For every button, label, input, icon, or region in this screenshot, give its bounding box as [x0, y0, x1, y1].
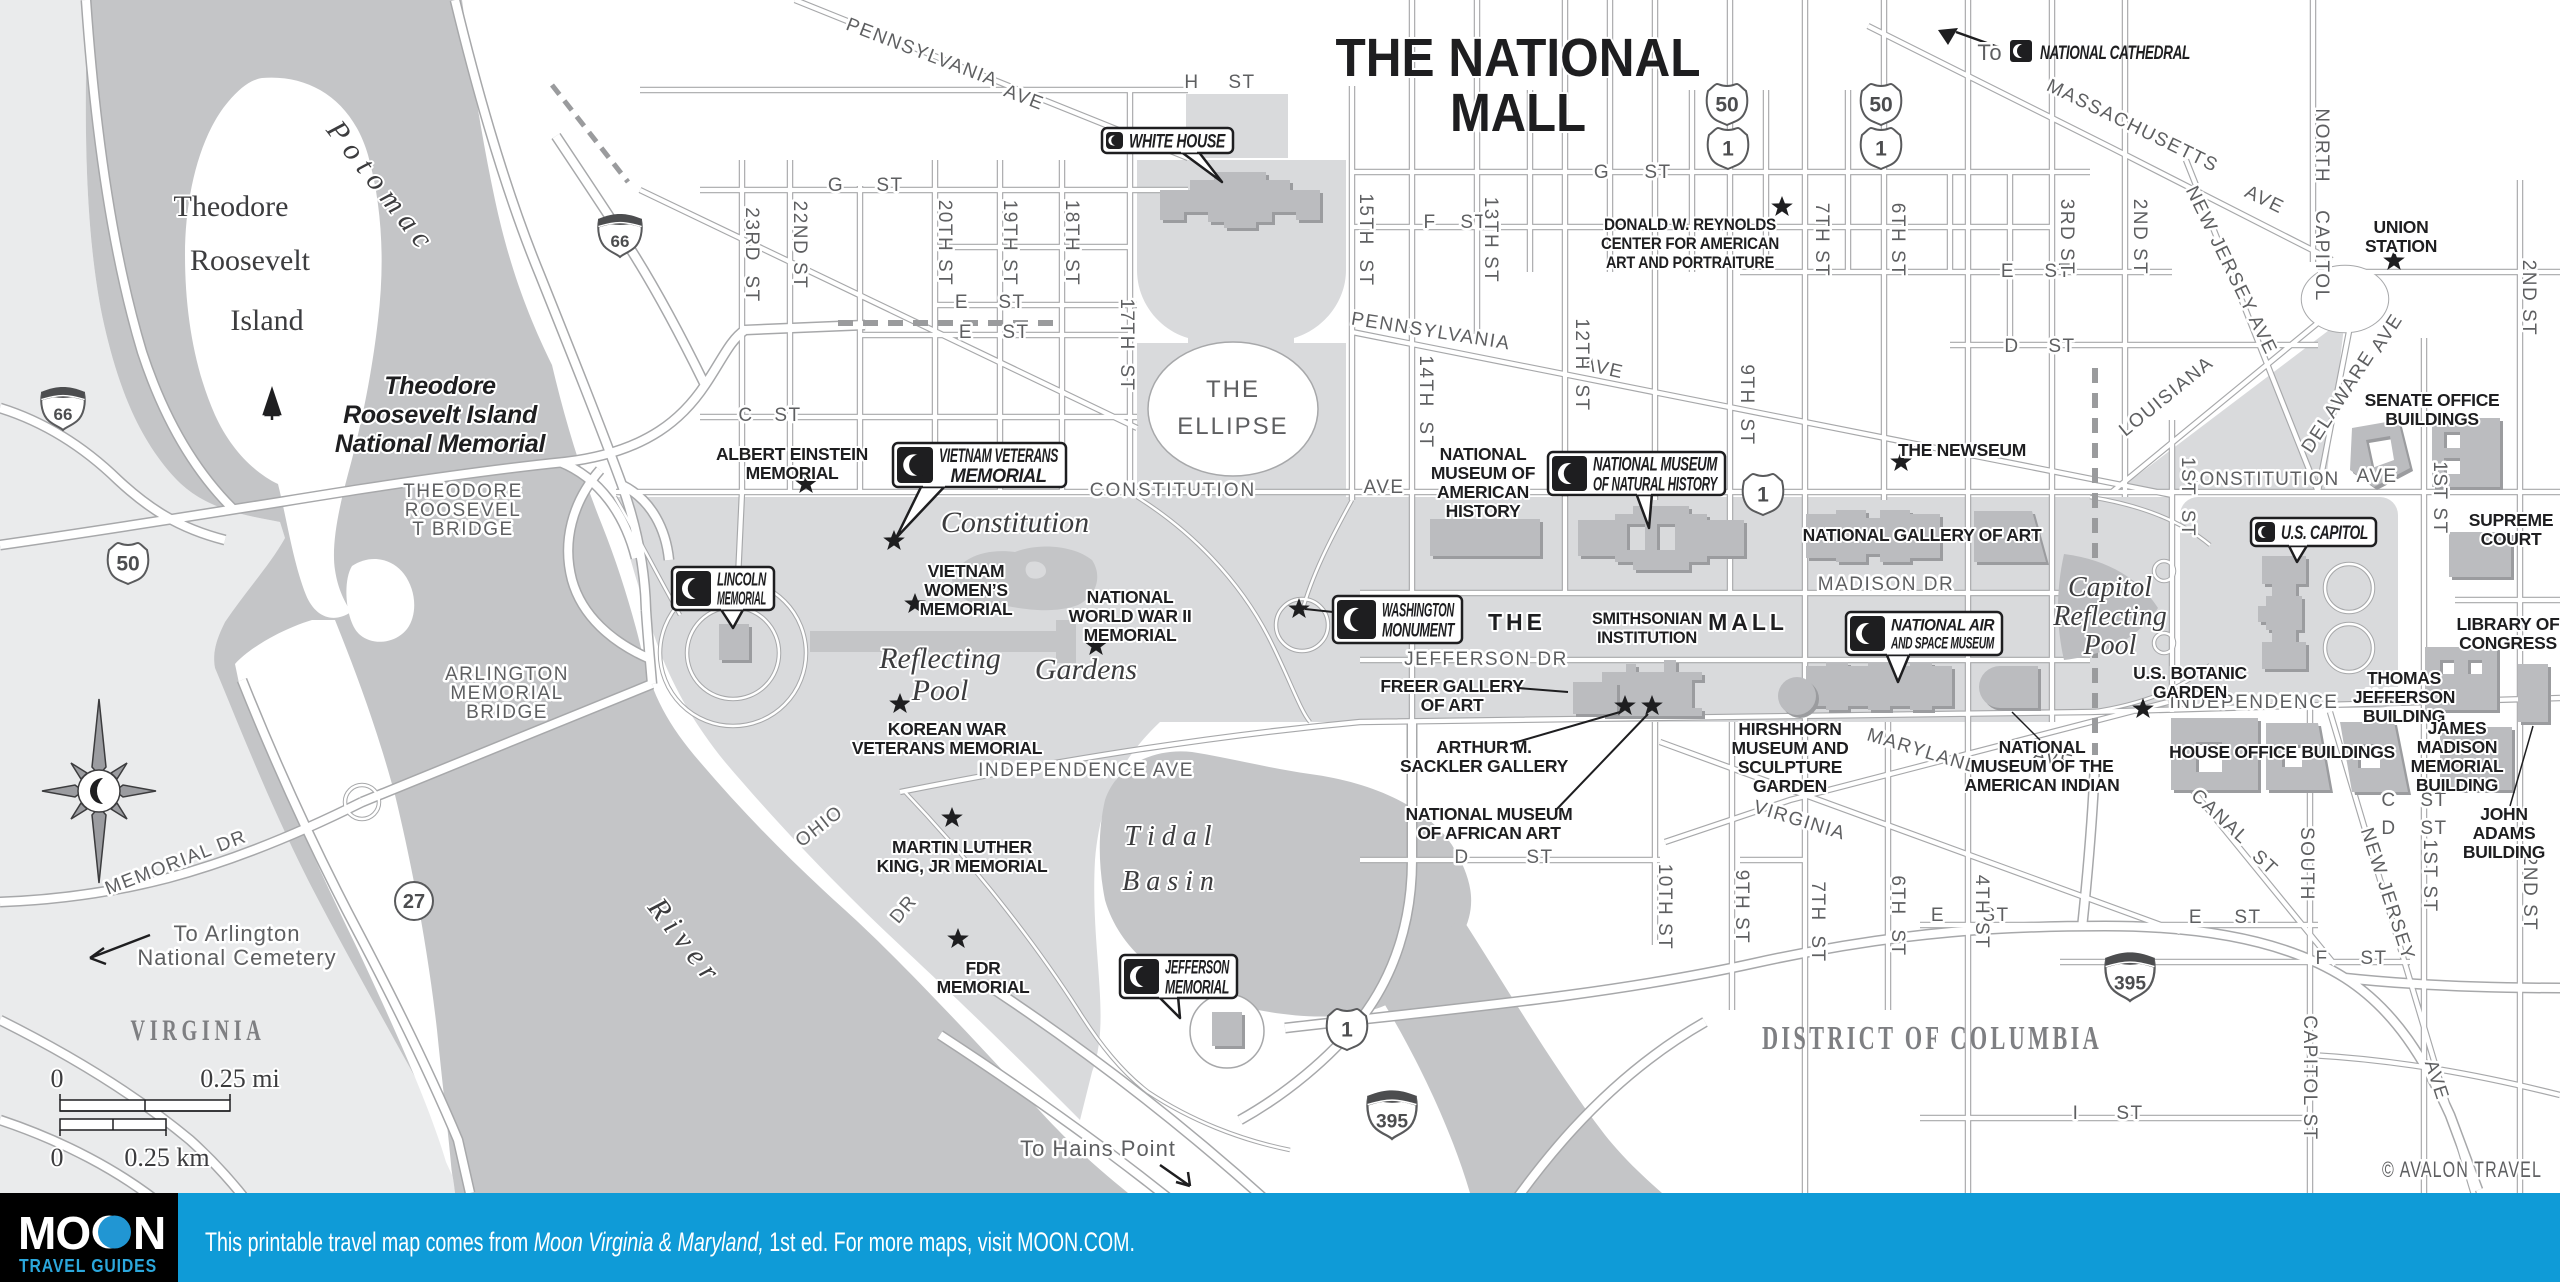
svg-text:H: H	[1184, 72, 1199, 93]
svg-text:ST: ST	[2420, 818, 2447, 839]
svg-text:1: 1	[1757, 484, 1769, 507]
svg-text:JEFFERSON DR: JEFFERSON DR	[1404, 649, 1568, 670]
svg-text:6TH ST: 6TH ST	[1887, 203, 1908, 277]
svg-text:12TH ST: 12TH ST	[1571, 318, 1592, 411]
svg-text:DISTRICT OF COLUMBIA: DISTRICT OF COLUMBIA	[1762, 1020, 2102, 1057]
svg-text:SCULPTURE: SCULPTURE	[1738, 757, 1842, 777]
svg-text:FDR: FDR	[965, 958, 1001, 978]
svg-text:MEMORIAL: MEMORIAL	[2411, 756, 2504, 776]
svg-text:7TH ST: 7TH ST	[1811, 203, 1832, 277]
svg-text:AMERICAN: AMERICAN	[1437, 482, 1529, 502]
svg-text:SMITHSONIAN: SMITHSONIAN	[1592, 609, 1702, 628]
svg-text:B a s i n: B a s i n	[1122, 866, 1214, 897]
svg-text:NATIONAL CATHEDRAL: NATIONAL CATHEDRAL	[2040, 43, 2190, 64]
svg-text:KING, JR MEMORIAL: KING, JR MEMORIAL	[877, 856, 1048, 876]
svg-text:Theodore: Theodore	[174, 190, 289, 223]
svg-text:G: G	[1594, 162, 1610, 183]
svg-text:BUILDING: BUILDING	[2416, 775, 2498, 795]
svg-text:KOREAN WAR: KOREAN WAR	[888, 719, 1007, 739]
svg-text:LIBRARY OF: LIBRARY OF	[2457, 614, 2560, 634]
svg-text:22ND ST: 22ND ST	[789, 201, 810, 290]
svg-text:MEMORIAL: MEMORIAL	[937, 977, 1030, 997]
svg-text:ST: ST	[998, 292, 1025, 313]
svg-text:Gardens: Gardens	[1035, 653, 1137, 686]
svg-text:Pool: Pool	[2083, 630, 2137, 661]
svg-text:1: 1	[1875, 138, 1887, 161]
svg-text:THE: THE	[1488, 609, 1546, 635]
svg-text:D: D	[2381, 818, 2396, 839]
svg-text:INDEPENDENCE AVE: INDEPENDENCE AVE	[978, 760, 1194, 781]
svg-text:CONGRESS: CONGRESS	[2459, 633, 2557, 653]
svg-text:WOMEN’S: WOMEN’S	[924, 580, 1007, 600]
svg-text:MEMORIAL: MEMORIAL	[746, 463, 839, 483]
svg-text:MEMORIAL: MEMORIAL	[717, 589, 766, 609]
svg-text:SOUTH: SOUTH	[2296, 827, 2317, 901]
svg-text:3RD ST: 3RD ST	[2056, 199, 2077, 276]
svg-text:ST: ST	[2360, 948, 2387, 969]
svg-text:2ND ST: 2ND ST	[2518, 260, 2539, 337]
svg-text:6TH ST: 6TH ST	[1887, 875, 1908, 956]
svg-text:0: 0	[51, 1143, 64, 1172]
svg-text:MALL: MALL	[1708, 609, 1788, 635]
svg-text:AND SPACE MUSEUM: AND SPACE MUSEUM	[1890, 634, 1994, 653]
svg-text:2ND ST: 2ND ST	[2519, 855, 2540, 932]
svg-text:MEMORIAL: MEMORIAL	[951, 466, 1047, 487]
svg-text:U.S. CAPITOL: U.S. CAPITOL	[2281, 523, 2368, 544]
svg-text:BRIDGE: BRIDGE	[466, 702, 548, 723]
svg-text:Reflecting: Reflecting	[878, 642, 1001, 675]
svg-text:27: 27	[403, 891, 425, 913]
svg-text:66: 66	[54, 405, 73, 424]
svg-text:4TH ST: 4TH ST	[1971, 875, 1992, 949]
svg-text:DONALD W. REYNOLDS: DONALD W. REYNOLDS	[1604, 215, 1776, 234]
svg-text:UNION: UNION	[2374, 217, 2429, 237]
svg-text:NORTH CAPITOL: NORTH CAPITOL	[2311, 108, 2332, 301]
svg-text:National Cemetery: National Cemetery	[137, 945, 336, 970]
svg-text:NATIONAL AIR: NATIONAL AIR	[1891, 616, 1995, 635]
svg-text:MO: MO	[18, 1207, 90, 1259]
svg-text:ST: ST	[1526, 847, 1553, 868]
svg-text:GARDEN: GARDEN	[2153, 682, 2227, 702]
svg-text:ARTHUR M.: ARTHUR M.	[1436, 737, 1531, 757]
svg-text:15TH ST: 15TH ST	[1355, 193, 1376, 286]
svg-text:SUPREME: SUPREME	[2469, 510, 2553, 530]
svg-text:National Memorial: National Memorial	[335, 430, 547, 458]
svg-text:JOHN: JOHN	[2480, 804, 2527, 824]
svg-text:10TH ST: 10TH ST	[1654, 864, 1675, 951]
svg-text:MUSEUM AND: MUSEUM AND	[1732, 738, 1849, 758]
svg-text:BUILDINGS: BUILDINGS	[2385, 409, 2479, 429]
svg-text:FREER GALLERY: FREER GALLERY	[1380, 676, 1524, 696]
svg-text:ST: ST	[1644, 162, 1671, 183]
svg-text:NATIONAL MUSEUM: NATIONAL MUSEUM	[1593, 454, 1718, 475]
svg-text:NATIONAL MUSEUM: NATIONAL MUSEUM	[1406, 804, 1573, 824]
svg-text:Constitution: Constitution	[941, 506, 1089, 539]
svg-text:MADISON DR: MADISON DR	[1818, 574, 1954, 595]
svg-text:ALBERT EINSTEIN: ALBERT EINSTEIN	[716, 444, 868, 464]
svg-text:1ST ST: 1ST ST	[2177, 457, 2198, 537]
svg-text:ST: ST	[1002, 322, 1029, 343]
svg-text:CONSTITUTION: CONSTITUTION	[2185, 469, 2340, 490]
svg-text:WHITE HOUSE: WHITE HOUSE	[1129, 131, 1226, 152]
svg-text:THOMAS: THOMAS	[2367, 668, 2441, 688]
svg-text:T BRIDGE: T BRIDGE	[412, 519, 513, 540]
svg-text:ST: ST	[876, 175, 903, 196]
svg-text:WASHINGTON: WASHINGTON	[1382, 600, 1455, 621]
svg-text:LINCOLN: LINCOLN	[717, 570, 767, 590]
svg-text:F: F	[1423, 212, 1436, 233]
svg-text:Roosevelt: Roosevelt	[190, 244, 311, 277]
svg-text:ST: ST	[2234, 907, 2261, 928]
svg-text:OF NATURAL HISTORY: OF NATURAL HISTORY	[1593, 474, 1719, 495]
svg-text:1ST ST: 1ST ST	[2429, 461, 2450, 534]
svg-text:MADISON: MADISON	[2417, 737, 2498, 757]
svg-text:ART AND PORTRAITURE: ART AND PORTRAITURE	[1606, 253, 1774, 272]
svg-text:VIETNAM VETERANS: VIETNAM VETERANS	[939, 446, 1059, 467]
svg-text:AVE: AVE	[2356, 466, 2397, 487]
svg-text:MEMORIAL: MEMORIAL	[1165, 977, 1229, 998]
svg-text:© AVALON TRAVEL: © AVALON TRAVEL	[2382, 1157, 2542, 1182]
svg-text:OF ART: OF ART	[1421, 695, 1484, 715]
svg-text:E: E	[2001, 261, 2015, 282]
svg-text:CENTER FOR AMERICAN: CENTER FOR AMERICAN	[1601, 234, 1779, 253]
svg-text:G: G	[828, 175, 844, 196]
svg-text:THE NATIONAL: THE NATIONAL	[1336, 28, 1701, 88]
svg-text:HISTORY: HISTORY	[1446, 501, 1521, 521]
svg-text:66: 66	[611, 232, 630, 251]
svg-text:7TH ST: 7TH ST	[1807, 881, 1828, 962]
svg-text:E: E	[959, 322, 973, 343]
svg-text:VETERANS MEMORIAL: VETERANS MEMORIAL	[852, 738, 1043, 758]
svg-text:BUILDING: BUILDING	[2463, 842, 2545, 862]
svg-text:1: 1	[1341, 1019, 1353, 1042]
svg-text:NATIONAL GALLERY OF ART: NATIONAL GALLERY OF ART	[1803, 525, 2042, 545]
svg-text:20TH ST: 20TH ST	[934, 200, 955, 287]
svg-text:TRAVEL GUIDES: TRAVEL GUIDES	[19, 1256, 157, 1276]
svg-text:MONUMENT: MONUMENT	[1382, 620, 1455, 641]
svg-text:1ST ST: 1ST ST	[2419, 839, 2440, 912]
svg-text:Roosevelt Island: Roosevelt Island	[343, 401, 538, 429]
svg-text:2ND ST: 2ND ST	[2129, 199, 2150, 276]
svg-text:Reflecting: Reflecting	[2052, 601, 2167, 632]
svg-text:E: E	[2189, 907, 2203, 928]
svg-text:E: E	[1931, 905, 1945, 926]
svg-text:0.25 km: 0.25 km	[124, 1143, 209, 1172]
svg-text:MALL: MALL	[1450, 83, 1586, 143]
svg-text:Capitol: Capitol	[2068, 572, 2152, 603]
svg-text:D: D	[1454, 847, 1469, 868]
svg-text:ST: ST	[2048, 336, 2075, 357]
svg-text:1: 1	[1722, 138, 1734, 161]
svg-text:MARTIN LUTHER: MARTIN LUTHER	[892, 837, 1033, 857]
svg-text:ADAMS: ADAMS	[2473, 823, 2536, 843]
svg-text:CONSTITUTION: CONSTITUTION	[1090, 480, 1257, 501]
svg-text:Island: Island	[230, 304, 303, 337]
svg-text:To Hains Point: To Hains Point	[1020, 1136, 1176, 1161]
svg-text:17TH ST: 17TH ST	[1116, 298, 1137, 391]
svg-text:18TH ST: 18TH ST	[1061, 200, 1082, 287]
svg-text:ST: ST	[1228, 72, 1255, 93]
svg-text:JAMES: JAMES	[2428, 718, 2487, 738]
svg-text:AVE: AVE	[1363, 477, 1404, 498]
svg-text:9TH ST: 9TH ST	[1736, 364, 1757, 445]
svg-text:ARLINGTON: ARLINGTON	[445, 664, 569, 685]
svg-text:23RD ST: 23RD ST	[741, 207, 762, 302]
svg-text:C: C	[738, 405, 753, 426]
svg-text:THE NEWSEUM: THE NEWSEUM	[1898, 440, 2026, 460]
svg-text:STATION: STATION	[2365, 236, 2437, 256]
svg-text:THEODORE: THEODORE	[403, 481, 523, 502]
svg-text:U.S. BOTANIC: U.S. BOTANIC	[2133, 663, 2247, 683]
svg-text:JEFFERSON: JEFFERSON	[2353, 687, 2455, 707]
svg-text:0: 0	[51, 1064, 64, 1093]
svg-text:9TH ST: 9TH ST	[1731, 870, 1752, 944]
svg-text:NATIONAL: NATIONAL	[1999, 737, 2086, 757]
svg-text:ST: ST	[774, 405, 801, 426]
svg-text:I: I	[2073, 1103, 2080, 1124]
svg-text:MUSEUM OF: MUSEUM OF	[1431, 463, 1536, 483]
svg-text:13TH ST: 13TH ST	[1480, 197, 1501, 284]
svg-text:NATIONAL: NATIONAL	[1087, 587, 1174, 607]
svg-text:E: E	[955, 292, 969, 313]
svg-text:HIRSHHORN: HIRSHHORN	[1738, 719, 1841, 739]
svg-text:Theodore: Theodore	[384, 372, 496, 400]
svg-text:CAPITOL ST: CAPITOL ST	[2299, 1015, 2320, 1141]
svg-text:F: F	[2315, 948, 2328, 969]
svg-text:50: 50	[116, 553, 139, 576]
svg-text:ELLIPSE: ELLIPSE	[1177, 413, 1288, 440]
svg-text:C: C	[2381, 790, 2396, 811]
svg-text:THE: THE	[1206, 376, 1260, 403]
svg-text:AMERICAN INDIAN: AMERICAN INDIAN	[1965, 775, 2120, 795]
svg-text:NATIONAL: NATIONAL	[1440, 444, 1527, 464]
svg-text:Pool: Pool	[911, 674, 969, 707]
svg-text:0.25 mi: 0.25 mi	[200, 1064, 279, 1093]
svg-text:50: 50	[1715, 94, 1738, 117]
svg-text:WORLD WAR II: WORLD WAR II	[1069, 606, 1192, 626]
svg-text:COURT: COURT	[2481, 529, 2542, 549]
svg-text:MEMORIAL: MEMORIAL	[450, 683, 563, 704]
svg-text:ROOSEVEL: ROOSEVEL	[405, 500, 522, 521]
svg-text:395: 395	[2114, 974, 2146, 995]
svg-text:HOUSE OFFICE BUILDINGS: HOUSE OFFICE BUILDINGS	[2169, 742, 2395, 762]
svg-text:SACKLER GALLERY: SACKLER GALLERY	[1400, 756, 1569, 776]
svg-text:14TH ST: 14TH ST	[1415, 355, 1436, 448]
svg-text:50: 50	[1869, 94, 1892, 117]
svg-text:MEMORIAL: MEMORIAL	[920, 599, 1013, 619]
svg-text:To: To	[1977, 40, 2002, 65]
svg-text:JEFFERSON: JEFFERSON	[1165, 957, 1230, 978]
svg-text:N: N	[133, 1207, 166, 1259]
svg-text:INSTITUTION: INSTITUTION	[1597, 628, 1697, 647]
svg-text:To Arlington: To Arlington	[174, 921, 301, 946]
svg-text:MUSEUM OF THE: MUSEUM OF THE	[1971, 756, 2114, 776]
svg-text:MEMORIAL: MEMORIAL	[1084, 625, 1177, 645]
svg-text:OF AFRICAN ART: OF AFRICAN ART	[1417, 823, 1561, 843]
svg-text:19TH ST: 19TH ST	[999, 200, 1020, 287]
svg-text:395: 395	[1376, 1112, 1408, 1133]
svg-text:This printable travel map come: This printable travel map comes from Moo…	[205, 1227, 1135, 1257]
svg-text:VIRGINIA: VIRGINIA	[131, 1014, 266, 1047]
svg-text:T i d a l: T i d a l	[1124, 821, 1211, 852]
svg-text:GARDEN: GARDEN	[1753, 776, 1827, 796]
svg-text:SENATE OFFICE: SENATE OFFICE	[2365, 390, 2500, 410]
svg-text:D: D	[2004, 336, 2019, 357]
svg-text:ST: ST	[2116, 1103, 2143, 1124]
svg-text:VIETNAM: VIETNAM	[928, 561, 1005, 581]
